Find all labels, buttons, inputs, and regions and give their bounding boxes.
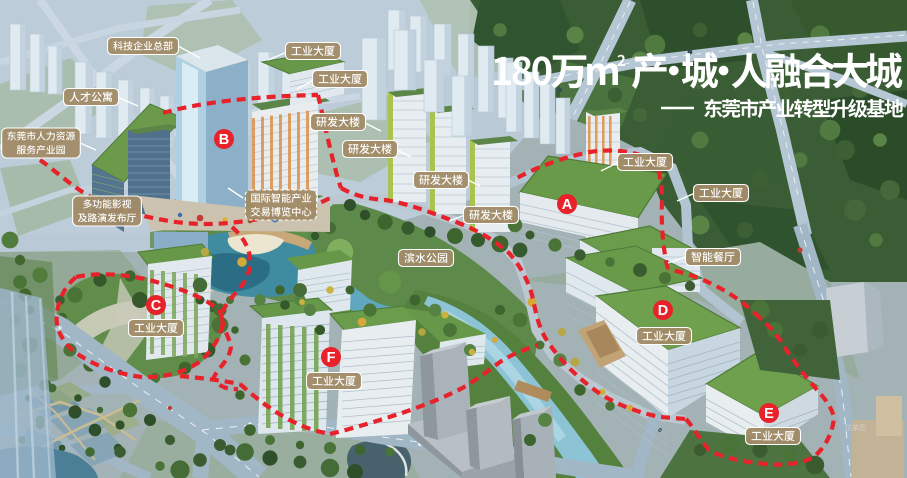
svg-text:C: C <box>151 298 162 314</box>
svg-text:位某图: 位某图 <box>845 423 866 432</box>
svg-text:B: B <box>219 132 229 148</box>
svg-text:D: D <box>658 303 668 319</box>
svg-text:E: E <box>764 406 774 422</box>
svg-text:A: A <box>562 197 573 213</box>
svg-text:F: F <box>327 350 336 366</box>
